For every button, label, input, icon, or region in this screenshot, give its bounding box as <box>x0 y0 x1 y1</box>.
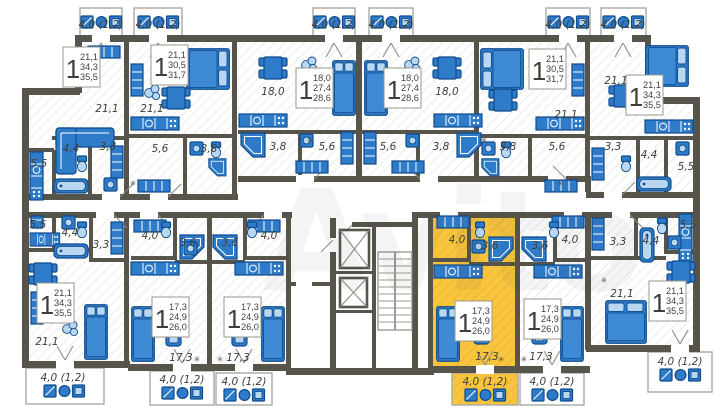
room-area-label: 21,1 <box>140 103 163 115</box>
toilet-icon <box>247 222 256 238</box>
svg-text:34,3: 34,3 <box>643 90 661 100</box>
balcony-items-icon <box>532 389 573 401</box>
room-area-label: 3,8 <box>270 141 287 153</box>
apartment-info-box: 121,130,531,7 <box>151 45 188 85</box>
svg-text:1: 1 <box>387 75 401 105</box>
room-area-label: 4,0 <box>562 234 579 246</box>
bed-icon <box>481 49 524 90</box>
room-area-label: 4,0 <box>449 234 466 246</box>
svg-text:35,5: 35,5 <box>666 306 684 316</box>
kitchen-icon <box>239 114 287 127</box>
room-area-label: 3,6 <box>180 237 197 249</box>
svg-text:18,0: 18,0 <box>401 73 419 83</box>
apartment-info-box: 117,324,926,0 <box>524 299 561 339</box>
svg-text:1: 1 <box>66 54 80 84</box>
svg-text:1: 1 <box>155 304 169 334</box>
room-area-label: 21,1 <box>604 75 627 87</box>
kitchen-icon <box>645 120 693 133</box>
svg-text:30,5: 30,5 <box>546 64 564 74</box>
room-area-label: 4,4 <box>63 143 80 155</box>
balcony-label: 4,0 (1,2) <box>369 19 414 31</box>
svg-text:1: 1 <box>154 52 168 82</box>
washing-machine-icon <box>406 134 419 147</box>
svg-text:27,4: 27,4 <box>313 83 331 93</box>
room-area-label: 3,3 <box>605 141 622 153</box>
bathtub-icon <box>637 177 671 191</box>
svg-text:28,6: 28,6 <box>401 93 419 103</box>
balcony-label: 4,0 (1,2) <box>79 19 124 31</box>
svg-text:1: 1 <box>227 304 241 334</box>
room-area-label: 3,3 <box>93 239 110 251</box>
wardrobe-icon <box>572 64 584 96</box>
room-area-label: 4,0 <box>142 230 159 242</box>
room-area-label: 5,6 <box>380 141 397 153</box>
svg-text:35,5: 35,5 <box>643 100 661 110</box>
balcony-items-icon <box>660 369 701 381</box>
room-area-label: 17,3 <box>169 352 192 364</box>
toilet-icon <box>77 156 86 172</box>
balcony-label: 4,0 (1,2) <box>41 372 86 384</box>
svg-text:21,1: 21,1 <box>546 54 564 64</box>
balcony-label: 4,0 (1,2) <box>530 376 575 388</box>
svg-text:17,3: 17,3 <box>541 304 559 314</box>
room-area-label: 5,6 <box>549 141 566 153</box>
svg-text:35,5: 35,5 <box>80 72 98 82</box>
svg-text:30,5: 30,5 <box>168 60 186 70</box>
room-area-label: 17,3 <box>529 351 552 363</box>
vent-icon: ✳ <box>307 136 314 145</box>
svg-text:17,3: 17,3 <box>169 302 187 312</box>
room-area-label: 5,5 <box>31 158 48 170</box>
kitchen-icon <box>434 114 482 127</box>
vent-icon: ✳ <box>601 276 608 285</box>
svg-text:21,1: 21,1 <box>80 52 98 62</box>
svg-text:24,9: 24,9 <box>541 314 559 324</box>
apartment-info-box: 117,324,926,0 <box>224 297 261 337</box>
room-area-label: 5,5 <box>30 219 47 231</box>
apartment-info-box: 121,130,531,7 <box>529 49 566 89</box>
vent-icon: ✳ <box>557 179 564 188</box>
balcony-items-icon <box>44 385 85 397</box>
svg-text:17,3: 17,3 <box>472 306 490 316</box>
svg-text:21,1: 21,1 <box>666 286 684 296</box>
room-area-label: 3,8 <box>433 141 450 153</box>
wardrobe-icon <box>131 64 143 96</box>
svg-text:28,6: 28,6 <box>313 93 331 103</box>
apartment-info-box-highlighted: 117,324,926,0 <box>455 301 492 341</box>
svg-text:26,0: 26,0 <box>169 322 187 332</box>
room-area-label: 3,6 <box>222 237 239 249</box>
kitchen-icon <box>30 233 60 246</box>
room-area-label: 18,0 <box>435 86 459 98</box>
room-area-label: 17,3 <box>475 351 498 363</box>
svg-text:31,7: 31,7 <box>546 74 564 84</box>
room-area-label: 21,1 <box>610 288 633 300</box>
room-area-label: 21,1 <box>554 109 577 121</box>
apartment-info-box: 121,134,335,5 <box>63 47 100 87</box>
vent-icon: ✳ <box>521 355 528 364</box>
toilet-icon <box>77 222 86 238</box>
toilet-icon <box>657 218 666 234</box>
apartment-info-box: 117,324,926,0 <box>152 297 189 337</box>
room-area-label: 3,6 <box>532 240 549 252</box>
room-area-label: 3,8 <box>500 141 517 153</box>
balcony-label: 4,0 (1,2) <box>136 19 181 31</box>
washing-machine-icon <box>668 236 681 249</box>
room-area-label: 18,0 <box>261 86 285 98</box>
apartment-info-box: 118,027,428,6 <box>296 68 333 108</box>
vent-icon: ✳ <box>481 136 488 145</box>
room-area-label: 21,1 <box>95 103 118 115</box>
kitchen-icon <box>131 262 179 275</box>
balcony-label: 4,0 (1,2) <box>658 356 703 368</box>
apartment-info-box: 121,134,335,5 <box>37 283 74 323</box>
kitchen-icon <box>131 117 179 130</box>
wardrobe-icon <box>138 180 170 192</box>
floor-plan-canvas: Avito 21,1 5,5 4,4 3,3 21,1 5,6 3,8 18,0… <box>0 0 720 412</box>
balcony-label: 4,0 (1,2) <box>546 19 591 31</box>
svg-text:34,3: 34,3 <box>54 298 72 308</box>
balcony-label: 4,0 (1,2) <box>312 19 357 31</box>
svg-text:21,1: 21,1 <box>54 288 72 298</box>
room-area-label: 3,8 <box>201 143 218 155</box>
balcony-items-icon <box>224 389 265 401</box>
bathtub-icon <box>54 179 88 193</box>
apartment-info-box: 118,027,428,6 <box>384 68 421 108</box>
svg-text:26,0: 26,0 <box>241 322 259 332</box>
svg-text:18,0: 18,0 <box>313 73 331 83</box>
balcony-label: 4,0 (1,2) <box>463 376 508 388</box>
toilet-icon <box>161 222 170 238</box>
room-area-label: 4,4 <box>641 149 658 161</box>
room-area-label: 17,3 <box>226 352 249 364</box>
vent-icon: ✳ <box>130 179 137 188</box>
room-area-label: 3,3 <box>100 141 117 153</box>
svg-text:1: 1 <box>532 56 546 86</box>
svg-text:1: 1 <box>629 82 643 112</box>
room-area-label: 4,4 <box>62 227 79 239</box>
bed-icon <box>85 305 108 360</box>
room-area-label: 3,6 <box>482 240 499 252</box>
svg-text:24,9: 24,9 <box>169 312 187 322</box>
bed-icon <box>333 61 356 116</box>
vent-icon: ✳ <box>217 355 224 364</box>
svg-text:1: 1 <box>458 308 472 338</box>
room-area-label: 5,6 <box>152 143 169 155</box>
washing-machine-icon <box>104 178 117 191</box>
svg-text:1: 1 <box>527 306 541 336</box>
room-area-label: 5,5 <box>678 161 695 173</box>
bed-icon <box>132 307 155 362</box>
bathtub-icon <box>54 244 88 258</box>
svg-text:1: 1 <box>40 290 54 320</box>
svg-text:1: 1 <box>299 75 313 105</box>
balcony-items-icon <box>162 387 203 399</box>
balcony-label: 4,0 (1,2) <box>222 376 267 388</box>
vent-icon: ✳ <box>194 355 201 364</box>
apartment-info-box: 121,134,335,5 <box>626 75 663 115</box>
wardrobe-icon <box>364 132 376 164</box>
room-area-label: 3,3 <box>610 236 627 248</box>
svg-text:27,4: 27,4 <box>401 83 419 93</box>
svg-text:1: 1 <box>652 288 666 318</box>
room-area-label: 4,0 <box>261 230 278 242</box>
svg-text:34,3: 34,3 <box>80 62 98 72</box>
room-area-label: 5,6 <box>319 141 336 153</box>
svg-text:21,1: 21,1 <box>168 50 186 60</box>
apartment-info-box: 121,134,335,5 <box>649 281 686 321</box>
wardrobe-icon <box>341 132 353 164</box>
balcony-label: 4,0 (1,2) <box>601 19 646 31</box>
svg-text:24,9: 24,9 <box>241 312 259 322</box>
svg-text:31,7: 31,7 <box>168 70 186 80</box>
svg-text:26,0: 26,0 <box>472 326 490 336</box>
vent-icon: ✳ <box>498 355 505 364</box>
bed-icon <box>187 49 230 90</box>
svg-text:35,5: 35,5 <box>54 308 72 318</box>
svg-text:26,0: 26,0 <box>541 324 559 334</box>
svg-text:34,3: 34,3 <box>666 296 684 306</box>
svg-text:17,3: 17,3 <box>241 302 259 312</box>
washing-machine-icon <box>676 142 689 155</box>
wardrobe-icon <box>111 222 123 254</box>
balcony-label: 4,0 (1,2) <box>160 374 205 386</box>
svg-text:24,9: 24,9 <box>472 316 490 326</box>
room-area-label: 4,4 <box>643 235 660 247</box>
balcony-items-icon <box>465 389 506 401</box>
room-area-label: 5,5 <box>680 219 697 231</box>
room-area-label: 21,1 <box>35 336 58 348</box>
floor-plan: Avito 21,1 5,5 4,4 3,3 21,1 5,6 3,8 18,0… <box>0 0 720 412</box>
svg-text:21,1: 21,1 <box>643 80 661 90</box>
